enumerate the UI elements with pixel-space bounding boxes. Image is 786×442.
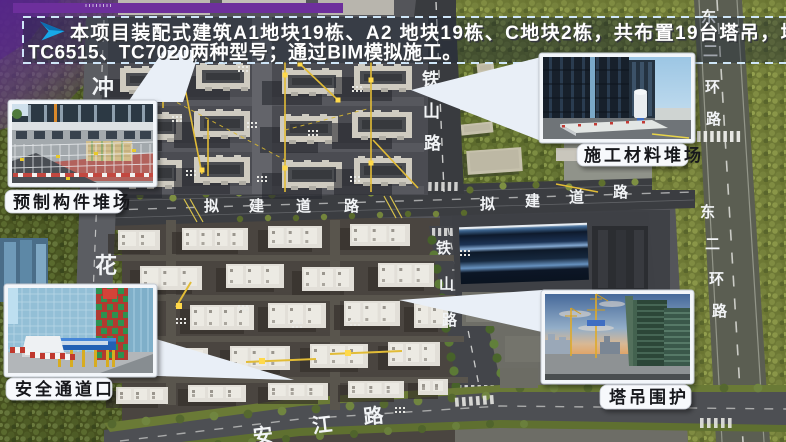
svg-text:路: 路 <box>712 302 728 320</box>
svg-text:安全通道口: 安全通道口 <box>15 379 115 399</box>
svg-text:山: 山 <box>439 276 454 293</box>
svg-text:TC6515、TC7020两种型号；通过BIM模拟施工。: TC6515、TC7020两种型号；通过BIM模拟施工。 <box>28 41 462 64</box>
svg-text:建: 建 <box>249 197 265 215</box>
svg-text:花: 花 <box>95 253 117 278</box>
svg-text:本项目装配式建筑A1地块19栋、A2 地块19栋、C地块2栋: 本项目装配式建筑A1地块19栋、A2 地块19栋、C地块2栋，共布置19台塔吊，… <box>70 21 786 44</box>
svg-text:建: 建 <box>525 192 541 210</box>
svg-text:环: 环 <box>709 271 724 288</box>
svg-text:二: 二 <box>705 236 720 253</box>
svg-text:道: 道 <box>569 188 584 206</box>
svg-text:环: 环 <box>705 79 720 96</box>
svg-text:铁: 铁 <box>436 239 451 257</box>
svg-text:山: 山 <box>423 102 440 121</box>
svg-text:路: 路 <box>344 197 360 215</box>
svg-text:路: 路 <box>613 183 629 201</box>
svg-text:路: 路 <box>424 133 442 153</box>
svg-text:道: 道 <box>296 197 311 215</box>
svg-text:路: 路 <box>442 311 458 329</box>
svg-text:东: 东 <box>700 203 715 221</box>
svg-text:江: 江 <box>311 413 333 438</box>
svg-text:塔吊围护: 塔吊围护 <box>609 387 689 407</box>
svg-text:安: 安 <box>252 422 275 442</box>
svg-text:拟: 拟 <box>204 197 219 215</box>
svg-text:冲: 冲 <box>92 75 114 100</box>
svg-text:预制构件堆场: 预制构件堆场 <box>13 192 133 212</box>
svg-text:路: 路 <box>362 403 386 429</box>
svg-text:路: 路 <box>706 110 722 128</box>
svg-text:拟: 拟 <box>480 195 495 213</box>
svg-text:施工材料堆场: 施工材料堆场 <box>584 145 704 165</box>
